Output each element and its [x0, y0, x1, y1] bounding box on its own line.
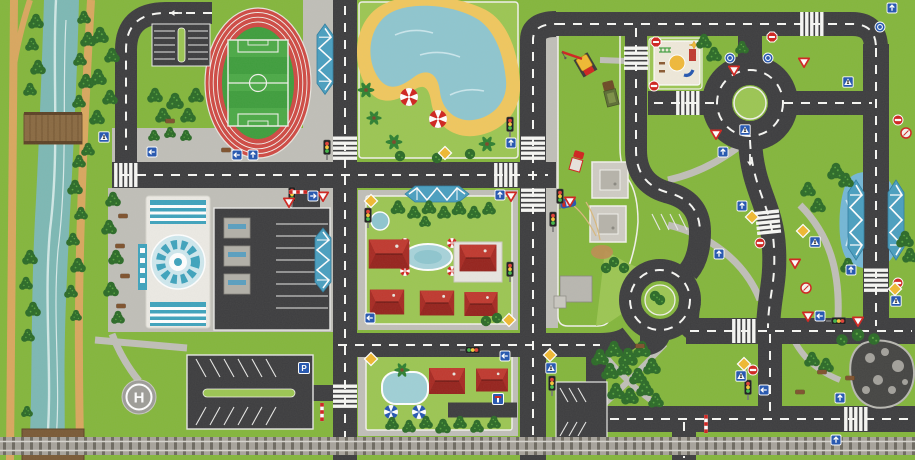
- carpet-texture-overlay: [0, 0, 915, 460]
- play-mat-scene: H: [0, 0, 915, 460]
